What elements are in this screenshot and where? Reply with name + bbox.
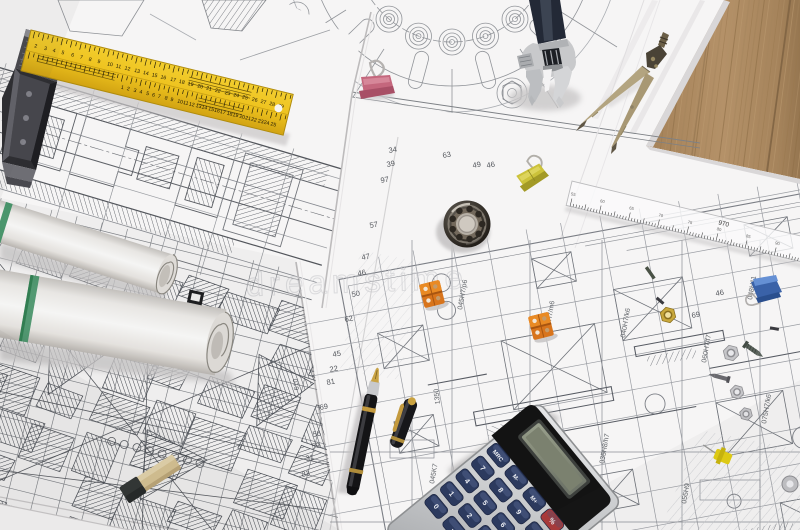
svg-text:34: 34 — [388, 145, 398, 155]
svg-text:69: 69 — [691, 310, 701, 320]
svg-text:81: 81 — [326, 377, 336, 387]
svg-text:97: 97 — [380, 175, 390, 185]
svg-text:39: 39 — [386, 159, 396, 169]
svg-text:46: 46 — [486, 160, 496, 170]
svg-text:22: 22 — [329, 364, 339, 374]
svg-text:46: 46 — [715, 288, 725, 298]
svg-text:63: 63 — [442, 150, 452, 160]
svg-text:45: 45 — [332, 349, 342, 359]
svg-text:49: 49 — [472, 160, 482, 170]
svg-text:47: 47 — [361, 252, 371, 262]
svg-text:62: 62 — [344, 314, 354, 324]
svg-text:57: 57 — [369, 220, 379, 230]
